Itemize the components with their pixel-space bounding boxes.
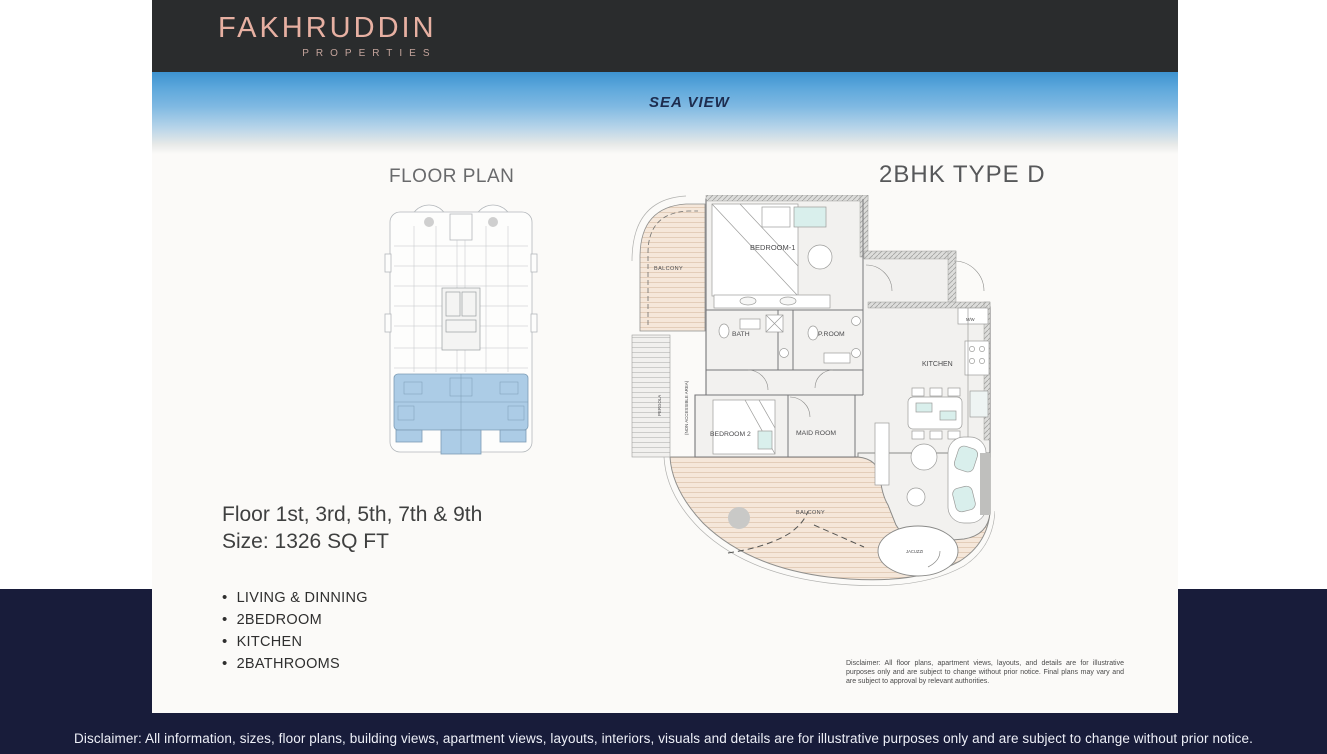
floor-plan-title: FLOOR PLAN: [389, 166, 514, 188]
stove-icon: [965, 341, 989, 375]
label-bath: BATH: [732, 331, 750, 338]
label-pergola-1: PERGOLA: [657, 395, 662, 416]
pillow-icon: [758, 431, 772, 449]
unit-type-title: 2BHK TYPE D: [879, 161, 1046, 189]
ottoman-icon: [808, 245, 832, 269]
label-balcony-bottom: BALCONY: [796, 510, 825, 516]
key-plan-core: [442, 288, 480, 350]
label-mw: M/W: [966, 317, 975, 322]
label-balcony-top: BALCONY: [654, 266, 683, 272]
unit-floor-plan: BALCONY BEDROOM-1 BATH P.ROOM KITCHEN M/…: [628, 195, 995, 600]
planter-icon: [728, 507, 750, 529]
pergola-area: [632, 335, 670, 457]
unit-facts: Floor 1st, 3rd, 5th, 7th & 9th Size: 132…: [222, 501, 482, 555]
feature-list: LIVING & DINNING 2BEDROOM KITCHEN 2BATHR…: [222, 589, 368, 677]
key-plan-detail: [488, 217, 498, 227]
header-bar: FAKHRUDDIN PROPERTIES: [152, 0, 1178, 72]
label-bedroom2: BEDROOM 2: [710, 431, 751, 438]
brand-subtitle: PROPERTIES: [218, 48, 437, 59]
kitchen-sink-icon: [970, 391, 988, 417]
label-proom: P.ROOM: [818, 331, 845, 338]
label-kitchen: KITCHEN: [922, 361, 953, 368]
building-key-plan: [384, 196, 538, 468]
sea-hero-image: SEA VIEW: [152, 72, 1178, 154]
plan-disclaimer-text: Disclaimer: All floor plans, apartment v…: [846, 659, 1124, 686]
label-pergola-2: (NON ACCESSIBLE AREA): [684, 380, 689, 435]
sea-view-label: SEA VIEW: [649, 94, 730, 111]
size-line: Size: 1326 SQ FT: [222, 528, 482, 555]
label-maid-room: MAID ROOM: [796, 430, 836, 437]
feature-item: 2BATHROOMS: [222, 655, 368, 673]
pillow-icon: [794, 207, 826, 227]
footer-disclaimer-text: Disclaimer: All information, sizes, floo…: [0, 731, 1327, 746]
brochure-page: FAKHRUDDIN PROPERTIES SEA VIEW FLOOR PLA…: [152, 0, 1178, 713]
wc-icon: [719, 324, 729, 338]
brand-logo: FAKHRUDDIN PROPERTIES: [218, 12, 437, 59]
label-jacuzzi: JACUZZI: [906, 549, 923, 554]
side-table-icon: [911, 444, 937, 470]
sink-icon: [740, 319, 760, 329]
key-plan-detail: [424, 217, 434, 227]
feature-item: KITCHEN: [222, 633, 368, 651]
sink-icon: [824, 353, 850, 363]
floor-line: Floor 1st, 3rd, 5th, 7th & 9th: [222, 501, 482, 528]
feature-item: 2BEDROOM: [222, 611, 368, 629]
wc-icon: [808, 326, 818, 340]
label-bedroom1: BEDROOM-1: [750, 243, 795, 252]
brand-name: FAKHRUDDIN: [218, 12, 437, 45]
feature-item: LIVING & DINNING: [222, 589, 368, 607]
vanity-icon: [714, 295, 830, 308]
